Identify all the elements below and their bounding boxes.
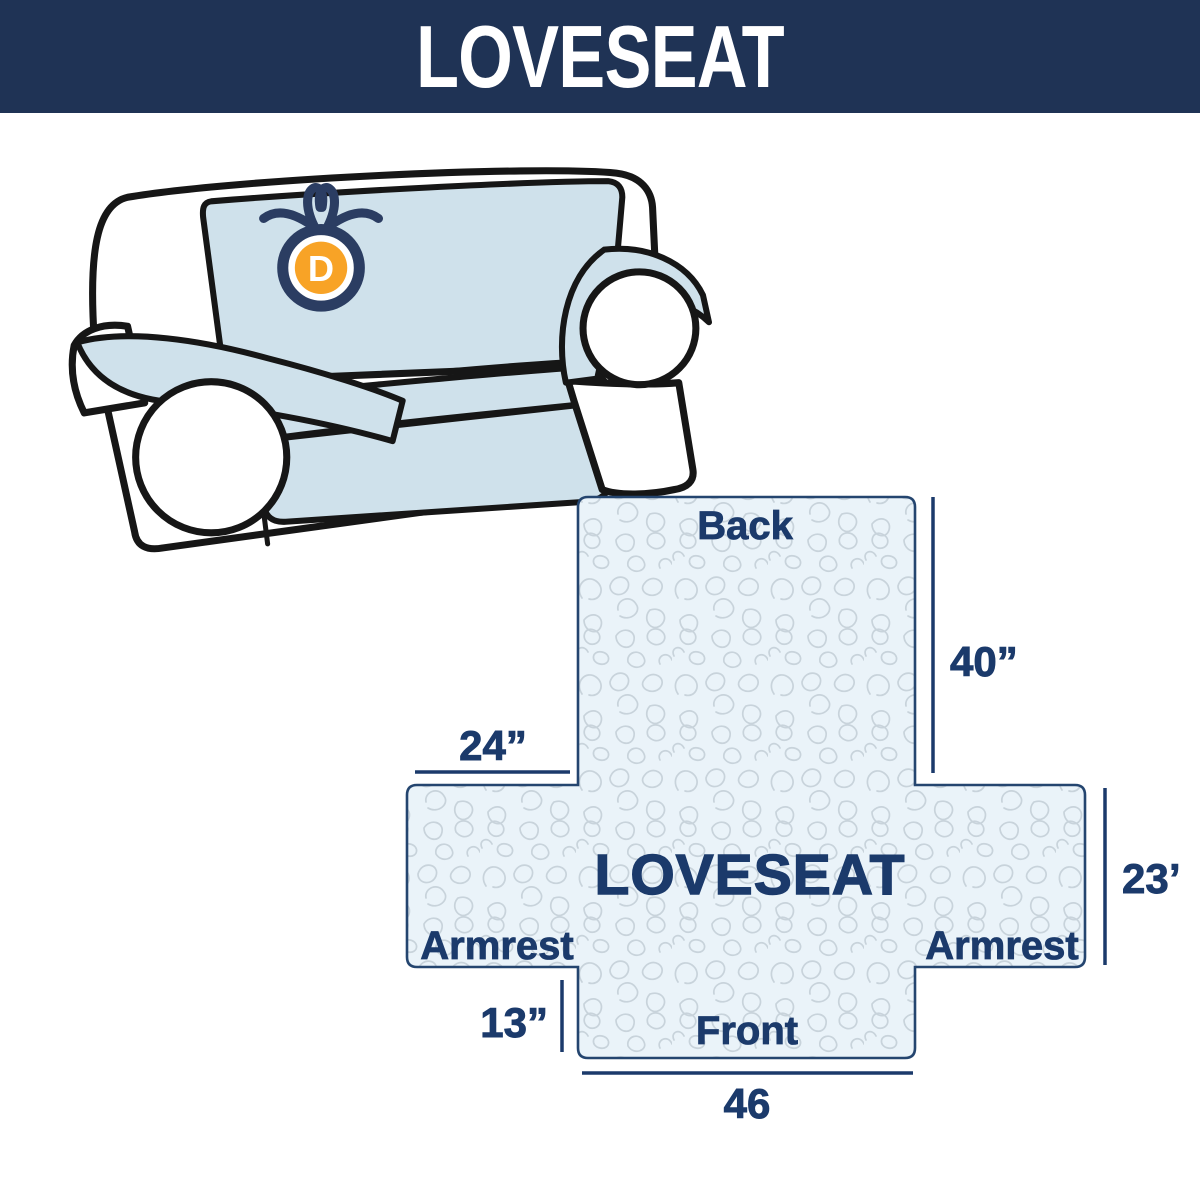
dim-back-height-value: 40” (950, 638, 1018, 685)
cover-shape (407, 497, 1085, 1058)
dim-armrest-height-value: 23” (1122, 855, 1180, 902)
dim-front-drop-value: 13” (480, 999, 548, 1046)
diagram-right-armrest-label: Armrest (925, 924, 1078, 968)
sofa-right-arm-roll (583, 272, 696, 385)
dim-front-width-value: 46 (724, 1080, 771, 1127)
sofa-left-arm-roll (136, 382, 287, 533)
dim-armrest-width-value: 24” (459, 722, 527, 769)
diagram-center-label: LOVESEAT (595, 843, 906, 907)
logo-letter: D (308, 248, 334, 289)
diagram-front-label: Front (696, 1009, 798, 1053)
dimension-diagram-svg: Back LOVESEAT Armrest Armrest Front 40” … (390, 480, 1180, 1140)
header-banner: LOVESEAT (0, 0, 1200, 113)
page-title: LOVESEAT (416, 13, 784, 101)
diagram-left-armrest-label: Armrest (420, 924, 573, 968)
diagram-back-label: Back (697, 504, 793, 548)
cover-dimension-diagram: Back LOVESEAT Armrest Armrest Front 40” … (390, 480, 1180, 1140)
